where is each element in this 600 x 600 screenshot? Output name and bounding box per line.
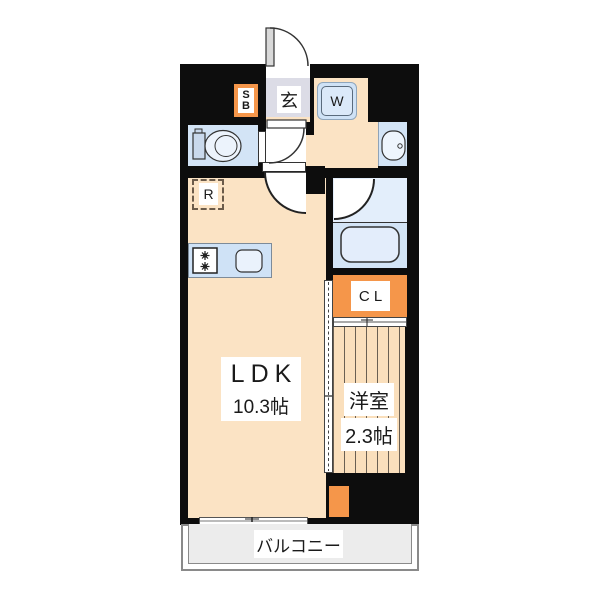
entrance-label: 玄 — [280, 87, 298, 113]
ldk-door-threshold — [262, 162, 306, 172]
closet-label-box: C L — [351, 281, 390, 311]
entrance-opening — [266, 64, 310, 78]
corridor — [266, 122, 306, 166]
entrance-label-box: 玄 — [277, 86, 301, 113]
toilet-room — [188, 125, 258, 166]
kitchen-counter — [188, 243, 272, 278]
refrigerator-label: R — [203, 186, 213, 202]
western-room-name: 洋室 — [349, 385, 389, 414]
ldk-room — [188, 178, 326, 518]
entrance-door-icon — [266, 28, 308, 66]
partition-sliding-track — [324, 280, 333, 473]
washbasin-room — [378, 122, 407, 166]
hallway-lower — [314, 122, 378, 168]
ldk-size: 10.3帖 — [233, 392, 289, 419]
washer-label: W — [330, 93, 343, 109]
wall-stub — [306, 166, 325, 194]
toilet-door-frame — [258, 131, 266, 163]
corridor-hall-opening — [306, 135, 314, 166]
washer-pan-inner: W — [321, 86, 353, 116]
structural-column — [329, 486, 349, 517]
shoe-box-label-s: S — [242, 90, 249, 101]
western-room-size: 2.3帖 — [345, 420, 393, 449]
closet-label: C L — [359, 288, 382, 305]
shoe-box-label-b: B — [242, 101, 250, 112]
ldk-name: LDK — [225, 360, 298, 389]
western-room-label-group: 洋室 2.3帖 — [333, 383, 405, 451]
floor-plan: S B W — [0, 0, 600, 600]
balcony-label-box: バルコニー — [254, 530, 343, 558]
bathroom-shower-area — [333, 178, 407, 222]
ldk-label-box: LDK 10.3帖 — [221, 357, 301, 421]
washer-pan: W — [317, 82, 357, 120]
refrigerator-label-box: R — [199, 183, 218, 205]
closet-sliding-track — [333, 317, 407, 327]
balcony-label: バルコニー — [256, 532, 341, 557]
bathroom-tub-area — [333, 222, 407, 268]
shoe-box: S B — [234, 84, 258, 117]
